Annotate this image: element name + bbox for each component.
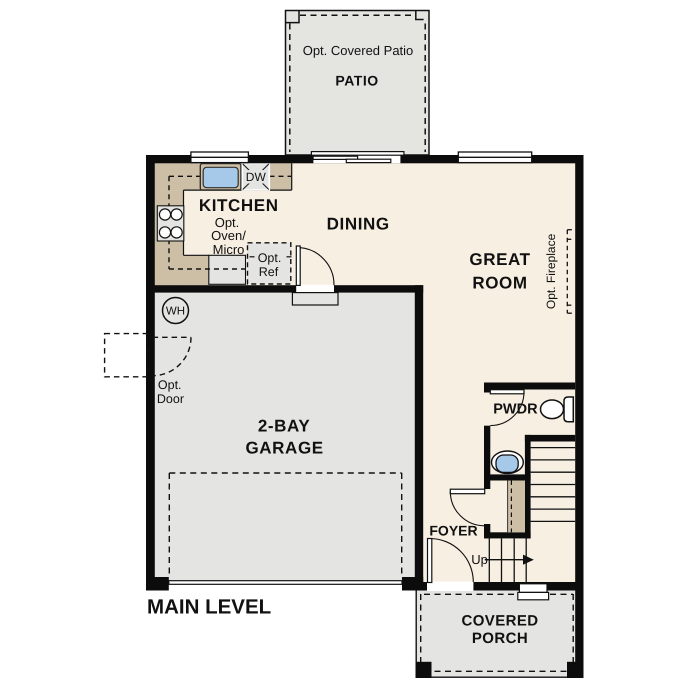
svg-text:Door: Door — [157, 392, 184, 406]
svg-text:Micro: Micro — [213, 242, 245, 257]
svg-text:MAIN LEVEL: MAIN LEVEL — [147, 596, 271, 619]
svg-text:ROOM: ROOM — [472, 274, 527, 293]
svg-text:Opt.: Opt. — [258, 251, 282, 265]
svg-text:PWDR: PWDR — [493, 402, 538, 418]
svg-text:GARAGE: GARAGE — [245, 438, 323, 457]
svg-text:GREAT: GREAT — [469, 250, 530, 269]
svg-text:WH: WH — [166, 306, 185, 318]
svg-text:Opt. Covered Patio: Opt. Covered Patio — [303, 43, 414, 58]
svg-text:DW: DW — [246, 170, 267, 184]
svg-text:Oven/: Oven/ — [211, 228, 246, 243]
svg-text:KITCHEN: KITCHEN — [199, 196, 279, 215]
svg-text:Opt. Fireplace: Opt. Fireplace — [544, 233, 558, 309]
svg-text:PORCH: PORCH — [472, 630, 528, 647]
svg-text:2-BAY: 2-BAY — [258, 417, 311, 436]
svg-text:PATIO: PATIO — [335, 73, 378, 89]
svg-text:Ref: Ref — [259, 265, 279, 279]
svg-text:COVERED: COVERED — [462, 613, 539, 630]
svg-text:Up: Up — [471, 552, 488, 567]
svg-text:DINING: DINING — [327, 214, 390, 233]
svg-text:FOYER: FOYER — [429, 522, 477, 538]
svg-text:Opt.: Opt. — [158, 378, 182, 392]
